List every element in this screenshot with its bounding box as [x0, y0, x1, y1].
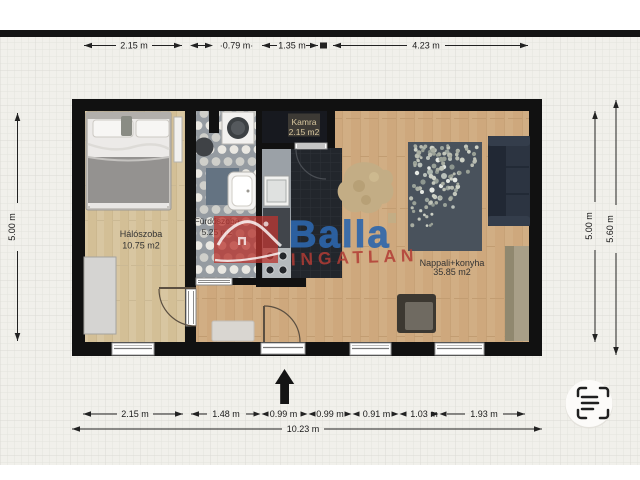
svg-text:10.75 m2: 10.75 m2: [122, 241, 160, 251]
svg-text:5.00 m: 5.00 m: [584, 212, 594, 240]
svg-text:0.99 m: 0.99 m: [270, 409, 298, 419]
svg-text:1.03 m: 1.03 m: [410, 409, 438, 419]
svg-text:35.85 m2: 35.85 m2: [433, 267, 471, 277]
svg-text:2.15 m: 2.15 m: [121, 409, 149, 419]
svg-text:0.99 m: 0.99 m: [316, 409, 344, 419]
svg-text:Kamra: Kamra: [291, 117, 316, 127]
svg-text:1.48 m: 1.48 m: [212, 409, 240, 419]
svg-text:4.23 m: 4.23 m: [412, 41, 440, 51]
svg-text:5.60 m: 5.60 m: [605, 215, 615, 243]
svg-text:10.23 m: 10.23 m: [287, 424, 320, 434]
svg-text:2.15 m: 2.15 m: [120, 41, 148, 51]
svg-text:Hálószoba: Hálószoba: [120, 229, 163, 239]
svg-text:1.93 m: 1.93 m: [470, 409, 498, 419]
svg-text:1.35 m: 1.35 m: [278, 41, 306, 51]
svg-text:0.91 m: 0.91 m: [363, 409, 391, 419]
svg-text:·0.79 m·: ·0.79 m·: [220, 41, 254, 51]
svg-text:5.00 m: 5.00 m: [7, 213, 17, 241]
svg-text:2.15 m2: 2.15 m2: [289, 127, 320, 137]
